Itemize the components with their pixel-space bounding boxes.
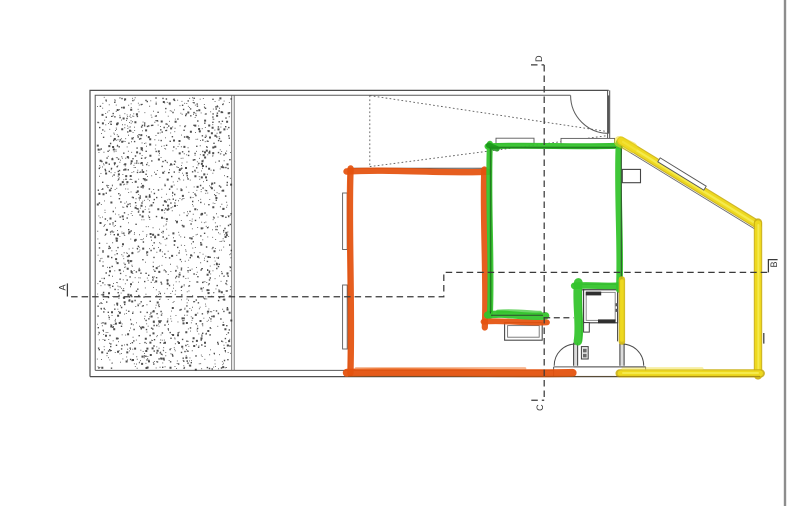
svg-text:A: A [58, 284, 68, 290]
svg-text:B: B [769, 261, 779, 267]
svg-text:D: D [534, 55, 544, 62]
svg-text:C: C [535, 404, 545, 411]
